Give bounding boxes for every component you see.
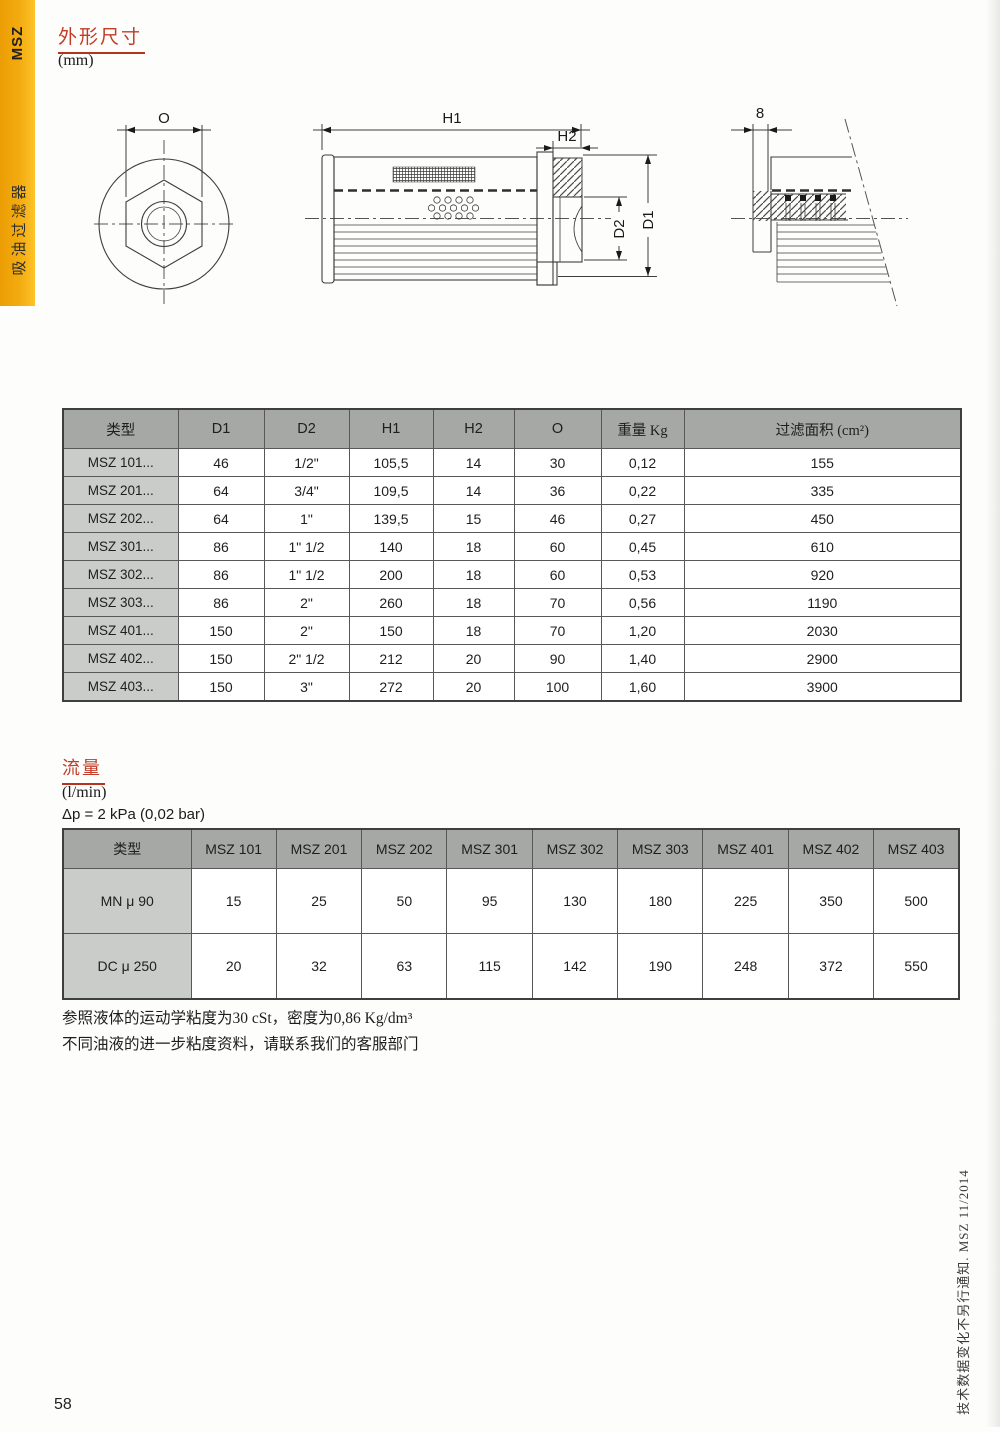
table-cell: 2" — [264, 617, 349, 645]
row-label: MSZ 202... — [63, 505, 178, 533]
row-label: MSZ 101... — [63, 449, 178, 477]
table-cell: 30 — [514, 449, 601, 477]
flow-table: 类型MSZ 101MSZ 201MSZ 202MSZ 301MSZ 302MSZ… — [62, 828, 960, 1000]
section-view-drawing: 8 — [731, 105, 908, 306]
table-cell: 0,56 — [601, 589, 684, 617]
table-cell: 550 — [874, 934, 959, 1000]
column-header: D2 — [264, 409, 349, 449]
table-cell: 1,40 — [601, 645, 684, 673]
table-cell: 150 — [178, 673, 264, 702]
table-row: MSZ 302...861" 1/220018600,53920 — [63, 561, 961, 589]
column-header: D1 — [178, 409, 264, 449]
table-cell: 0,12 — [601, 449, 684, 477]
dim-label-wall: 8 — [756, 105, 764, 122]
table-cell: 46 — [178, 449, 264, 477]
table-cell: 115 — [447, 934, 532, 1000]
row-label: MSZ 301... — [63, 533, 178, 561]
dim-label-d2: D2 — [611, 219, 628, 238]
table-cell: 109,5 — [349, 477, 433, 505]
row-label: MSZ 401... — [63, 617, 178, 645]
table-row: MSZ 403...1503"272201001,603900 — [63, 673, 961, 702]
table-cell: 60 — [514, 561, 601, 589]
table-cell: 372 — [788, 934, 873, 1000]
table-cell: 46 — [514, 505, 601, 533]
table-cell: 64 — [178, 505, 264, 533]
column-header: MSZ 201 — [276, 829, 361, 869]
table-cell: 14 — [433, 449, 514, 477]
row-label: MN μ 90 — [63, 869, 191, 934]
table-cell: 36 — [514, 477, 601, 505]
front-view-drawing: O — [94, 110, 234, 304]
table-cell: 25 — [276, 869, 361, 934]
table-row: MN μ 9015255095130180225350500 — [63, 869, 959, 934]
table-cell: 139,5 — [349, 505, 433, 533]
column-header: 类型 — [63, 409, 178, 449]
table-cell: 190 — [618, 934, 703, 1000]
table-cell: 225 — [703, 869, 788, 934]
table-cell: 0,22 — [601, 477, 684, 505]
table-cell: 140 — [349, 533, 433, 561]
column-header: MSZ 401 — [703, 829, 788, 869]
table-cell: 70 — [514, 589, 601, 617]
table-cell: 2" 1/2 — [264, 645, 349, 673]
table-cell: 105,5 — [349, 449, 433, 477]
row-label: DC μ 250 — [63, 934, 191, 1000]
table-cell: 90 — [514, 645, 601, 673]
table-cell: 335 — [684, 477, 961, 505]
table-cell: 0,27 — [601, 505, 684, 533]
table-row: MSZ 301...861" 1/214018600,45610 — [63, 533, 961, 561]
table-cell: 1190 — [684, 589, 961, 617]
table-cell: 0,53 — [601, 561, 684, 589]
table-cell: 60 — [514, 533, 601, 561]
table-row: MSZ 401...1502"15018701,202030 — [63, 617, 961, 645]
table-cell: 20 — [191, 934, 276, 1000]
flow-title: 流量 — [62, 754, 105, 785]
table-row: MSZ 201...643/4"109,514360,22335 — [63, 477, 961, 505]
table-cell: 100 — [514, 673, 601, 702]
table-cell: 248 — [703, 934, 788, 1000]
table-cell: 20 — [433, 673, 514, 702]
table-cell: 50 — [362, 869, 447, 934]
table-cell: 272 — [349, 673, 433, 702]
column-header: MSZ 101 — [191, 829, 276, 869]
table-cell: 1/2" — [264, 449, 349, 477]
table-row: MSZ 101...461/2"105,514300,12155 — [63, 449, 961, 477]
table-cell: 920 — [684, 561, 961, 589]
table-cell: 2" — [264, 589, 349, 617]
table-cell: 1" — [264, 505, 349, 533]
column-header: H2 — [433, 409, 514, 449]
dimensions-table: 类型D1D2H1H2O重量 Kg过滤面积 (cm²)MSZ 101...461/… — [62, 408, 962, 702]
table-cell: 95 — [447, 869, 532, 934]
page-edge-shading — [986, 0, 1000, 1427]
table-cell: 1" 1/2 — [264, 533, 349, 561]
table-cell: 200 — [349, 561, 433, 589]
table-cell: 3900 — [684, 673, 961, 702]
table-cell: 150 — [178, 645, 264, 673]
technical-drawing: O — [0, 0, 1000, 370]
column-header: MSZ 301 — [447, 829, 532, 869]
table-cell: 150 — [178, 617, 264, 645]
note-line-1: 参照液体的运动学粘度为30 cSt，密度为0,86 Kg/dm³ — [62, 1006, 419, 1032]
column-header: H1 — [349, 409, 433, 449]
dim-label-o: O — [158, 110, 170, 127]
table-cell: 86 — [178, 533, 264, 561]
dim-label-h1: H1 — [442, 110, 461, 127]
table-cell: 450 — [684, 505, 961, 533]
flow-condition: Δp = 2 kPa (0,02 bar) — [62, 806, 205, 823]
table-cell: 350 — [788, 869, 873, 934]
table-cell: 0,45 — [601, 533, 684, 561]
flow-unit: (l/min) — [62, 784, 106, 802]
column-header: MSZ 303 — [618, 829, 703, 869]
table-cell: 18 — [433, 561, 514, 589]
table-cell: 155 — [684, 449, 961, 477]
table-cell: 150 — [349, 617, 433, 645]
table-cell: 2900 — [684, 645, 961, 673]
table-cell: 32 — [276, 934, 361, 1000]
table-cell: 3/4" — [264, 477, 349, 505]
row-label: MSZ 303... — [63, 589, 178, 617]
table-cell: 86 — [178, 561, 264, 589]
dim-label-d1: D1 — [640, 210, 657, 229]
column-header: 过滤面积 (cm²) — [684, 409, 961, 449]
column-header: 重量 Kg — [601, 409, 684, 449]
table-cell: 15 — [433, 505, 514, 533]
column-header: MSZ 402 — [788, 829, 873, 869]
table-cell: 86 — [178, 589, 264, 617]
column-header: O — [514, 409, 601, 449]
table-row: MSZ 202...641"139,515460,27450 — [63, 505, 961, 533]
table-cell: 1,20 — [601, 617, 684, 645]
table-row: MSZ 402...1502" 1/221220901,402900 — [63, 645, 961, 673]
column-header: MSZ 302 — [532, 829, 617, 869]
page-number: 58 — [54, 1396, 72, 1414]
table-cell: 212 — [349, 645, 433, 673]
table-cell: 3" — [264, 673, 349, 702]
viscosity-notes: 参照液体的运动学粘度为30 cSt，密度为0,86 Kg/dm³ 不同油液的进一… — [62, 1006, 419, 1058]
column-header: MSZ 403 — [874, 829, 959, 869]
column-header: MSZ 202 — [362, 829, 447, 869]
table-row: DC μ 250203263115142190248372550 — [63, 934, 959, 1000]
table-cell: 15 — [191, 869, 276, 934]
table-cell: 18 — [433, 617, 514, 645]
table-cell: 70 — [514, 617, 601, 645]
flow-section-heading: 流量 — [62, 754, 105, 785]
table-cell: 180 — [618, 869, 703, 934]
table-cell: 18 — [433, 589, 514, 617]
edition-side-note: 技术数据变化不另行通知. MSZ 11/2014 — [953, 1152, 971, 1432]
table-cell: 610 — [684, 533, 961, 561]
header-row: 类型MSZ 101MSZ 201MSZ 202MSZ 301MSZ 302MSZ… — [63, 829, 959, 869]
dim-label-h2: H2 — [557, 128, 576, 145]
table-cell: 64 — [178, 477, 264, 505]
table-cell: 260 — [349, 589, 433, 617]
table-cell: 63 — [362, 934, 447, 1000]
note-line-2: 不同油液的进一步粘度资料，请联系我们的客服部门 — [62, 1032, 419, 1058]
table-cell: 142 — [532, 934, 617, 1000]
table-row: MSZ 303...862"26018700,561190 — [63, 589, 961, 617]
column-header: 类型 — [63, 829, 191, 869]
table-cell: 1" 1/2 — [264, 561, 349, 589]
row-label: MSZ 302... — [63, 561, 178, 589]
table-cell: 500 — [874, 869, 959, 934]
table-cell: 1,60 — [601, 673, 684, 702]
table-cell: 14 — [433, 477, 514, 505]
row-label: MSZ 201... — [63, 477, 178, 505]
side-view-drawing: H1 H2 D1 D2 — [305, 110, 657, 285]
table-cell: 20 — [433, 645, 514, 673]
table-cell: 2030 — [684, 617, 961, 645]
table-cell: 18 — [433, 533, 514, 561]
header-row: 类型D1D2H1H2O重量 Kg过滤面积 (cm²) — [63, 409, 961, 449]
row-label: MSZ 402... — [63, 645, 178, 673]
table-cell: 130 — [532, 869, 617, 934]
row-label: MSZ 403... — [63, 673, 178, 702]
